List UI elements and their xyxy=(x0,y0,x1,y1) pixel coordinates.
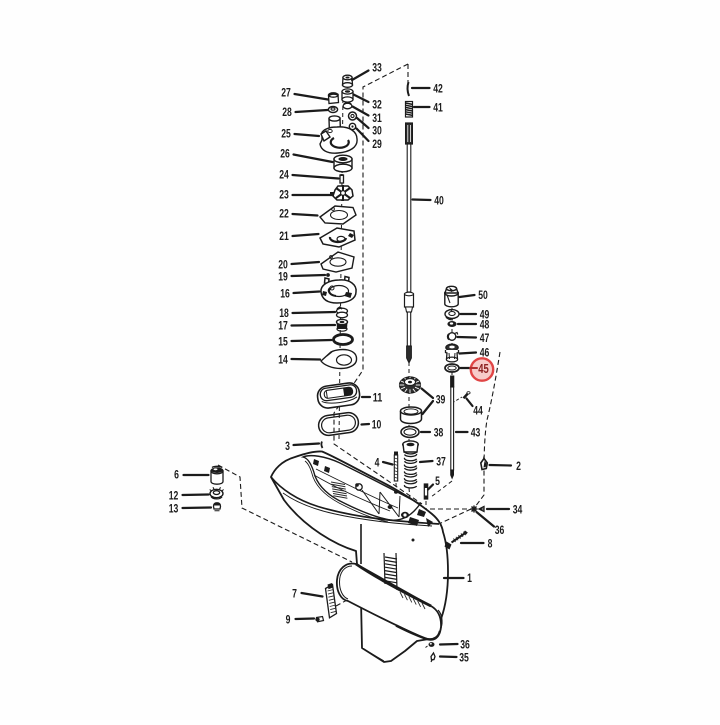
svg-text:17: 17 xyxy=(278,319,288,333)
svg-text:15: 15 xyxy=(278,335,288,349)
svg-text:21: 21 xyxy=(279,229,289,243)
svg-text:1: 1 xyxy=(467,571,472,585)
svg-text:14: 14 xyxy=(278,353,288,367)
svg-text:42: 42 xyxy=(433,82,443,96)
svg-text:19: 19 xyxy=(278,270,288,284)
svg-text:24: 24 xyxy=(279,168,289,182)
svg-text:11: 11 xyxy=(373,391,383,405)
svg-text:47: 47 xyxy=(480,331,490,345)
svg-text:48: 48 xyxy=(480,318,490,332)
svg-text:10: 10 xyxy=(372,418,382,432)
svg-text:13: 13 xyxy=(169,502,179,516)
svg-text:36: 36 xyxy=(460,638,470,652)
svg-text:50: 50 xyxy=(478,288,488,302)
svg-text:6: 6 xyxy=(174,468,179,482)
svg-text:43: 43 xyxy=(471,426,481,440)
svg-text:34: 34 xyxy=(513,503,523,517)
svg-text:36: 36 xyxy=(495,523,505,537)
svg-text:26: 26 xyxy=(280,147,290,161)
svg-text:16: 16 xyxy=(280,287,290,301)
svg-text:29: 29 xyxy=(372,137,382,151)
svg-text:37: 37 xyxy=(436,455,446,469)
svg-text:33: 33 xyxy=(372,61,382,75)
svg-text:7: 7 xyxy=(292,587,297,601)
svg-text:32: 32 xyxy=(372,98,382,112)
svg-text:40: 40 xyxy=(434,194,444,208)
svg-text:4: 4 xyxy=(375,456,380,470)
svg-text:23: 23 xyxy=(279,188,289,202)
svg-text:3: 3 xyxy=(285,439,290,453)
svg-text:45: 45 xyxy=(478,361,489,376)
svg-text:5: 5 xyxy=(435,474,440,488)
svg-text:12: 12 xyxy=(169,489,179,503)
svg-text:39: 39 xyxy=(436,393,446,407)
svg-text:28: 28 xyxy=(282,105,292,119)
svg-text:9: 9 xyxy=(286,613,291,627)
svg-text:25: 25 xyxy=(281,127,291,141)
svg-text:35: 35 xyxy=(459,651,469,665)
svg-text:8: 8 xyxy=(488,537,493,551)
svg-text:22: 22 xyxy=(279,207,289,221)
svg-text:46: 46 xyxy=(480,346,490,360)
svg-text:41: 41 xyxy=(433,101,443,115)
svg-text:44: 44 xyxy=(473,404,483,418)
svg-text:38: 38 xyxy=(434,426,444,440)
svg-text:30: 30 xyxy=(372,124,382,138)
svg-text:27: 27 xyxy=(281,86,291,100)
svg-text:2: 2 xyxy=(516,459,521,473)
